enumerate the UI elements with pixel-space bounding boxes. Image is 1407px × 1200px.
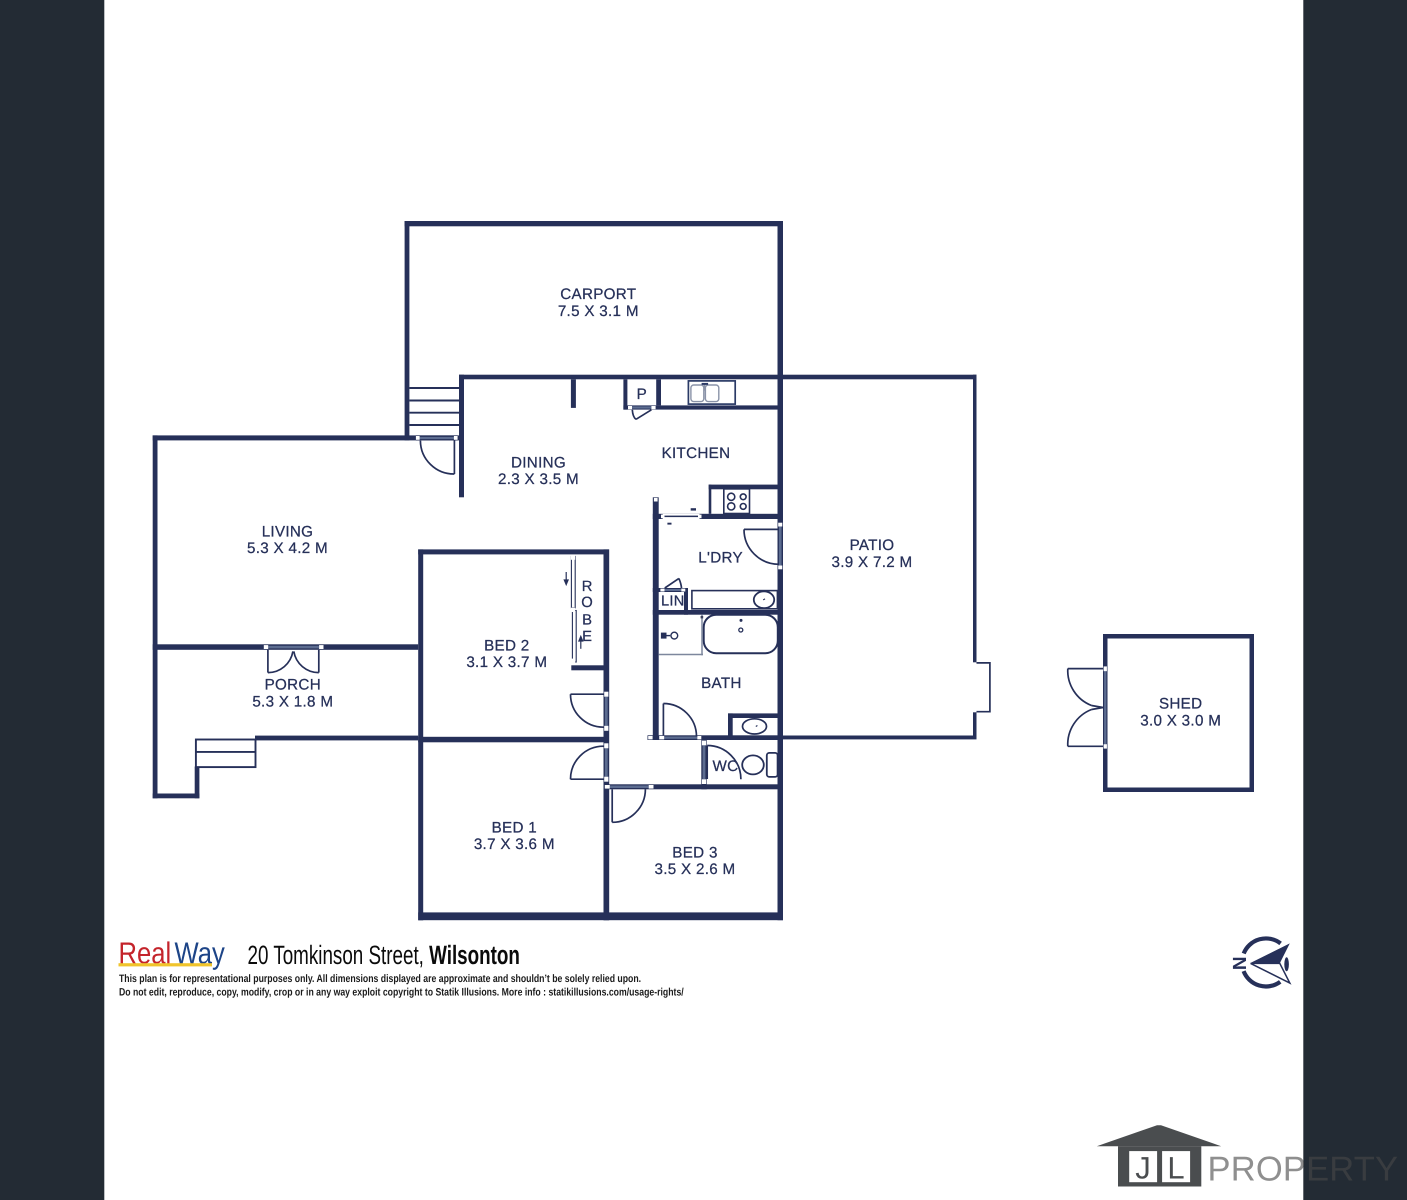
svg-text:5.3 X 4.2 M: 5.3 X 4.2 M: [247, 540, 328, 557]
svg-text:BED 2: BED 2: [484, 637, 529, 654]
svg-text:N: N: [1230, 956, 1251, 970]
svg-text:WC: WC: [713, 758, 739, 775]
svg-text:3.9 X 7.2 M: 3.9 X 7.2 M: [832, 554, 913, 571]
svg-text:L: L: [1167, 1150, 1184, 1185]
svg-text:SHED: SHED: [1159, 696, 1202, 713]
svg-text:7.5 X 3.1 M: 7.5 X 3.1 M: [558, 303, 639, 320]
svg-text:J: J: [1135, 1150, 1151, 1185]
svg-text:PROPERTY: PROPERTY: [1208, 1150, 1399, 1188]
svg-text:This plan is for representatio: This plan is for representational purpos…: [119, 973, 641, 985]
svg-text:E: E: [582, 629, 592, 645]
svg-text:L'DRY: L'DRY: [698, 550, 743, 567]
svg-text:20 Tomkinson Street, Wilsonton: 20 Tomkinson Street, Wilsonton: [248, 940, 520, 970]
svg-text:PORCH: PORCH: [265, 677, 321, 694]
svg-text:PATIO: PATIO: [850, 537, 895, 554]
svg-text:B: B: [582, 612, 592, 628]
svg-text:R: R: [582, 579, 593, 595]
svg-text:LIVING: LIVING: [262, 523, 314, 540]
svg-text:3.1 X 3.7 M: 3.1 X 3.7 M: [466, 654, 547, 671]
svg-text:O: O: [581, 595, 593, 611]
svg-text:P: P: [637, 386, 647, 403]
svg-text:3.0 X 3.0 M: 3.0 X 3.0 M: [1140, 712, 1221, 729]
svg-text:Do not edit, reproduce, copy,: Do not edit, reproduce, copy, modify, cr…: [119, 986, 684, 998]
svg-text:BED 3: BED 3: [672, 844, 717, 861]
svg-text:3.5 X 2.6 M: 3.5 X 2.6 M: [655, 861, 736, 878]
svg-text:DINING: DINING: [511, 454, 566, 471]
svg-text:BED 1: BED 1: [492, 819, 537, 836]
svg-text:LIN: LIN: [661, 594, 685, 610]
svg-text:BATH: BATH: [701, 675, 742, 692]
svg-text:3.7 X 3.6 M: 3.7 X 3.6 M: [474, 836, 555, 853]
svg-text:CARPORT: CARPORT: [560, 286, 636, 303]
svg-text:KITCHEN: KITCHEN: [662, 445, 731, 462]
svg-text:5.3 X 1.8 M: 5.3 X 1.8 M: [252, 694, 333, 711]
svg-text:2.3 X 3.5 M: 2.3 X 3.5 M: [498, 471, 579, 488]
